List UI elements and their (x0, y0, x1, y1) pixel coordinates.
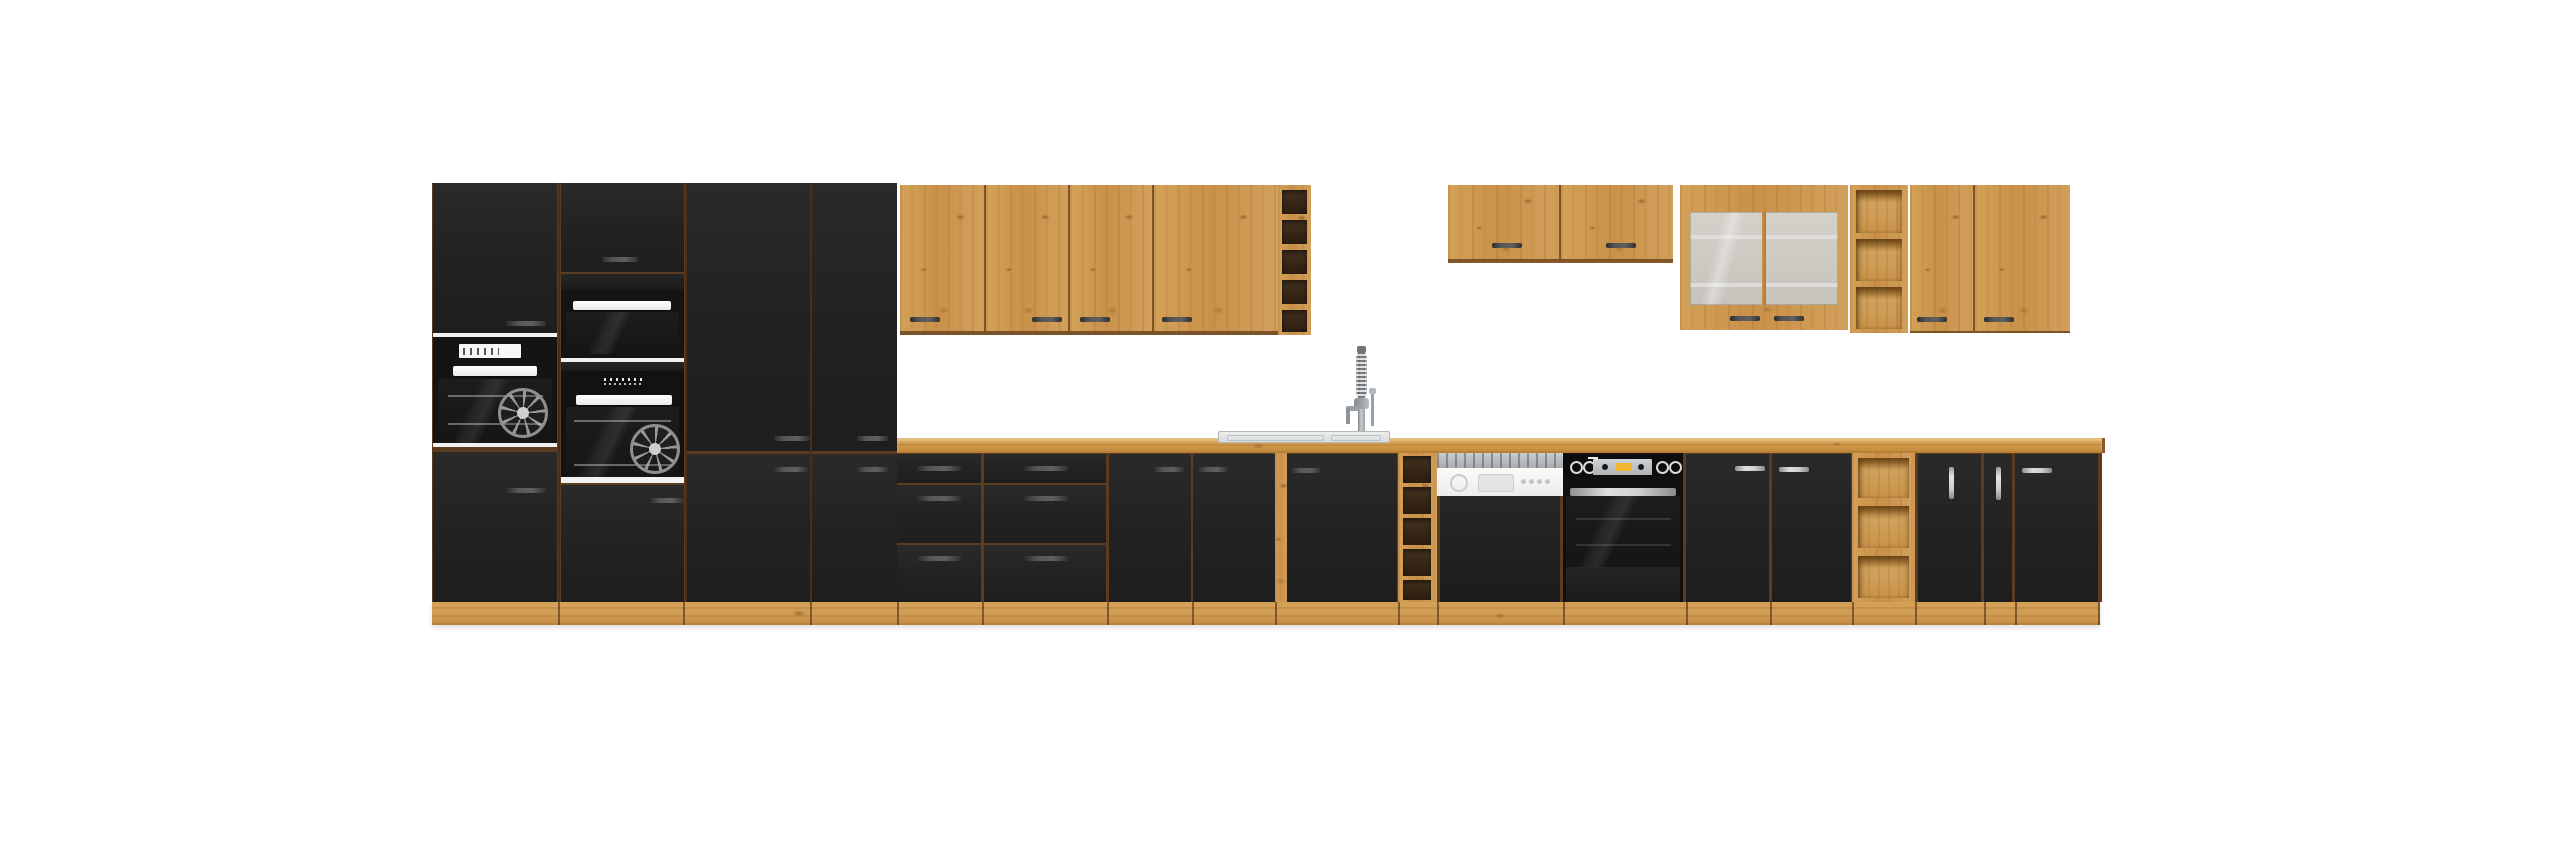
shelf-opening (1858, 556, 1909, 598)
door-handle (910, 317, 940, 322)
door-cabinet-40 (1686, 453, 1770, 602)
drawer-front (984, 545, 1106, 602)
wall-cabinets-middle (900, 185, 1311, 335)
door-handle (1032, 317, 1062, 322)
door-cabinet-50 (1287, 453, 1398, 602)
door-handle (1606, 243, 1636, 248)
oven-handle (576, 395, 672, 405)
drawer-handle (917, 496, 961, 501)
glass-display-cabinet (1680, 185, 1848, 330)
open-shelf-wall (1850, 185, 1908, 333)
compact-oven (561, 290, 684, 358)
shelf-opening (1856, 239, 1902, 281)
door-handle (1984, 317, 2014, 322)
door-handle (1779, 467, 1809, 472)
cabinet-door (812, 183, 897, 451)
tall-column-oven-b (558, 183, 687, 602)
wall-door (1910, 185, 1973, 331)
cabinet-door (687, 454, 811, 602)
compact-oven-glass (566, 312, 679, 354)
compact-oven-handle (573, 301, 671, 310)
dishwasher (1437, 453, 1563, 602)
wine-rack-opening (1282, 250, 1307, 274)
drawer-handle (917, 466, 961, 471)
tap-spring (1356, 352, 1367, 398)
open-shelf-base (1852, 453, 1915, 602)
wall-door (900, 185, 984, 331)
drawer-front (984, 485, 1106, 543)
wine-rack-opening (1282, 190, 1307, 214)
drawer-handle (1024, 556, 1068, 561)
cabinet-door (1686, 454, 1769, 602)
drawer-handle (1024, 496, 1068, 501)
shelf-opening (1858, 506, 1909, 548)
door-cabinet-40 (2015, 453, 2099, 602)
cabinet-door (433, 183, 557, 333)
cabinet-door (433, 452, 557, 602)
drawer-front (897, 485, 981, 543)
wine-rack-opening (1403, 549, 1431, 576)
oven-knob (1656, 461, 1669, 474)
built-in-oven-display (433, 337, 557, 447)
door-handle (1080, 317, 1110, 322)
door-handle (774, 436, 810, 441)
oven-display-yellow (1616, 463, 1632, 471)
oven-control-display (601, 375, 647, 388)
oven-control-panel (1563, 455, 1683, 477)
tall-column-oven-a (432, 183, 558, 602)
door-handle (1162, 317, 1192, 322)
door-handle-vertical (1996, 467, 2001, 500)
oven-fan (630, 424, 680, 474)
door-handle (1735, 466, 1765, 471)
oven-knob (1669, 461, 1682, 474)
drawer-handle (1024, 466, 1068, 471)
door-handle (774, 467, 808, 472)
wine-rack-wall (1278, 185, 1311, 335)
cabinet-door (1772, 454, 1851, 602)
cabinet-door (2015, 454, 2098, 602)
plinth (432, 602, 2100, 625)
door-cabinet-40 (1770, 453, 1852, 602)
base-cabinets (897, 453, 2102, 602)
oven-glass-door (566, 407, 679, 477)
oven-fan (498, 388, 548, 438)
tall-units (432, 183, 897, 602)
tap-lever (1371, 392, 1374, 426)
wine-rack-base (1398, 453, 1437, 602)
cabinet-door (1287, 454, 1397, 602)
wall-cabinets-right (1448, 185, 2070, 333)
shelf-opening (1858, 458, 1909, 498)
glass-cabinet-interior (1690, 212, 1838, 305)
door-handle (1291, 468, 1321, 473)
wine-rack-opening (1282, 220, 1307, 244)
oven-handle (1570, 488, 1676, 496)
oven-display (459, 344, 521, 358)
door-handle (1917, 317, 1947, 322)
wall-cabinet-right (1910, 185, 2070, 333)
door-handle (1198, 467, 1228, 472)
door-handle (506, 488, 546, 493)
wine-rack-opening (1282, 310, 1307, 332)
wall-cabinet-short (1448, 185, 1673, 263)
wine-rack-opening (1282, 280, 1307, 304)
oven-display (1593, 459, 1652, 475)
oven-glass-door (1566, 496, 1680, 567)
oven-knob (1570, 461, 1583, 474)
drawer-unit-40 (897, 453, 982, 602)
dishwasher-top-steel (1437, 453, 1563, 468)
dishwasher-door-panel (1440, 496, 1560, 602)
cargo-pullout-15 (1984, 453, 2013, 602)
door-handle (1730, 316, 1760, 321)
door-handle (1774, 316, 1804, 321)
door-handle (1492, 243, 1522, 248)
door-handle (602, 257, 638, 262)
cabinet-door (1109, 454, 1191, 602)
wine-rack-opening (1403, 456, 1431, 483)
door-cabinet-30 (1918, 453, 1982, 602)
door-handle (1154, 467, 1184, 472)
drawer-front (897, 545, 981, 602)
drawer-handle (917, 556, 961, 561)
wall-door (1975, 185, 2070, 331)
door-handle (857, 467, 888, 472)
cabinet-door (1193, 454, 1275, 602)
door-handle (2022, 468, 2052, 473)
sink-cabinet (1109, 453, 1275, 602)
oven-glass-door (438, 379, 552, 443)
cabinet-door (687, 183, 811, 451)
cabinet-door (812, 454, 897, 602)
wine-rack-opening (1403, 518, 1431, 545)
wall-door (1070, 185, 1152, 331)
door-handle-vertical (1949, 467, 1954, 499)
shelf-opening (1856, 190, 1902, 233)
built-in-oven (1563, 453, 1683, 602)
door-handle (506, 321, 546, 326)
tall-column-pantry-40 (810, 183, 899, 602)
built-in-fan-oven (561, 371, 684, 483)
wall-door (986, 185, 1068, 331)
door-handle (857, 436, 888, 441)
wall-door (1154, 185, 1278, 331)
carcass-panel (1275, 453, 1287, 602)
worktop (897, 438, 2105, 453)
dishwasher-control-panel (1437, 468, 1563, 496)
oven-handle (453, 366, 537, 376)
wine-rack-opening (1403, 487, 1431, 514)
shelf-opening (1856, 287, 1902, 329)
drawer-unit-60 (984, 453, 1107, 602)
door-handle (650, 498, 684, 503)
tall-column-pantry-60 (685, 183, 812, 602)
sink (1218, 431, 1390, 443)
wine-rack-opening (1403, 580, 1431, 600)
kitchen-set-render (0, 0, 2560, 847)
mixer-tap (1344, 346, 1388, 440)
